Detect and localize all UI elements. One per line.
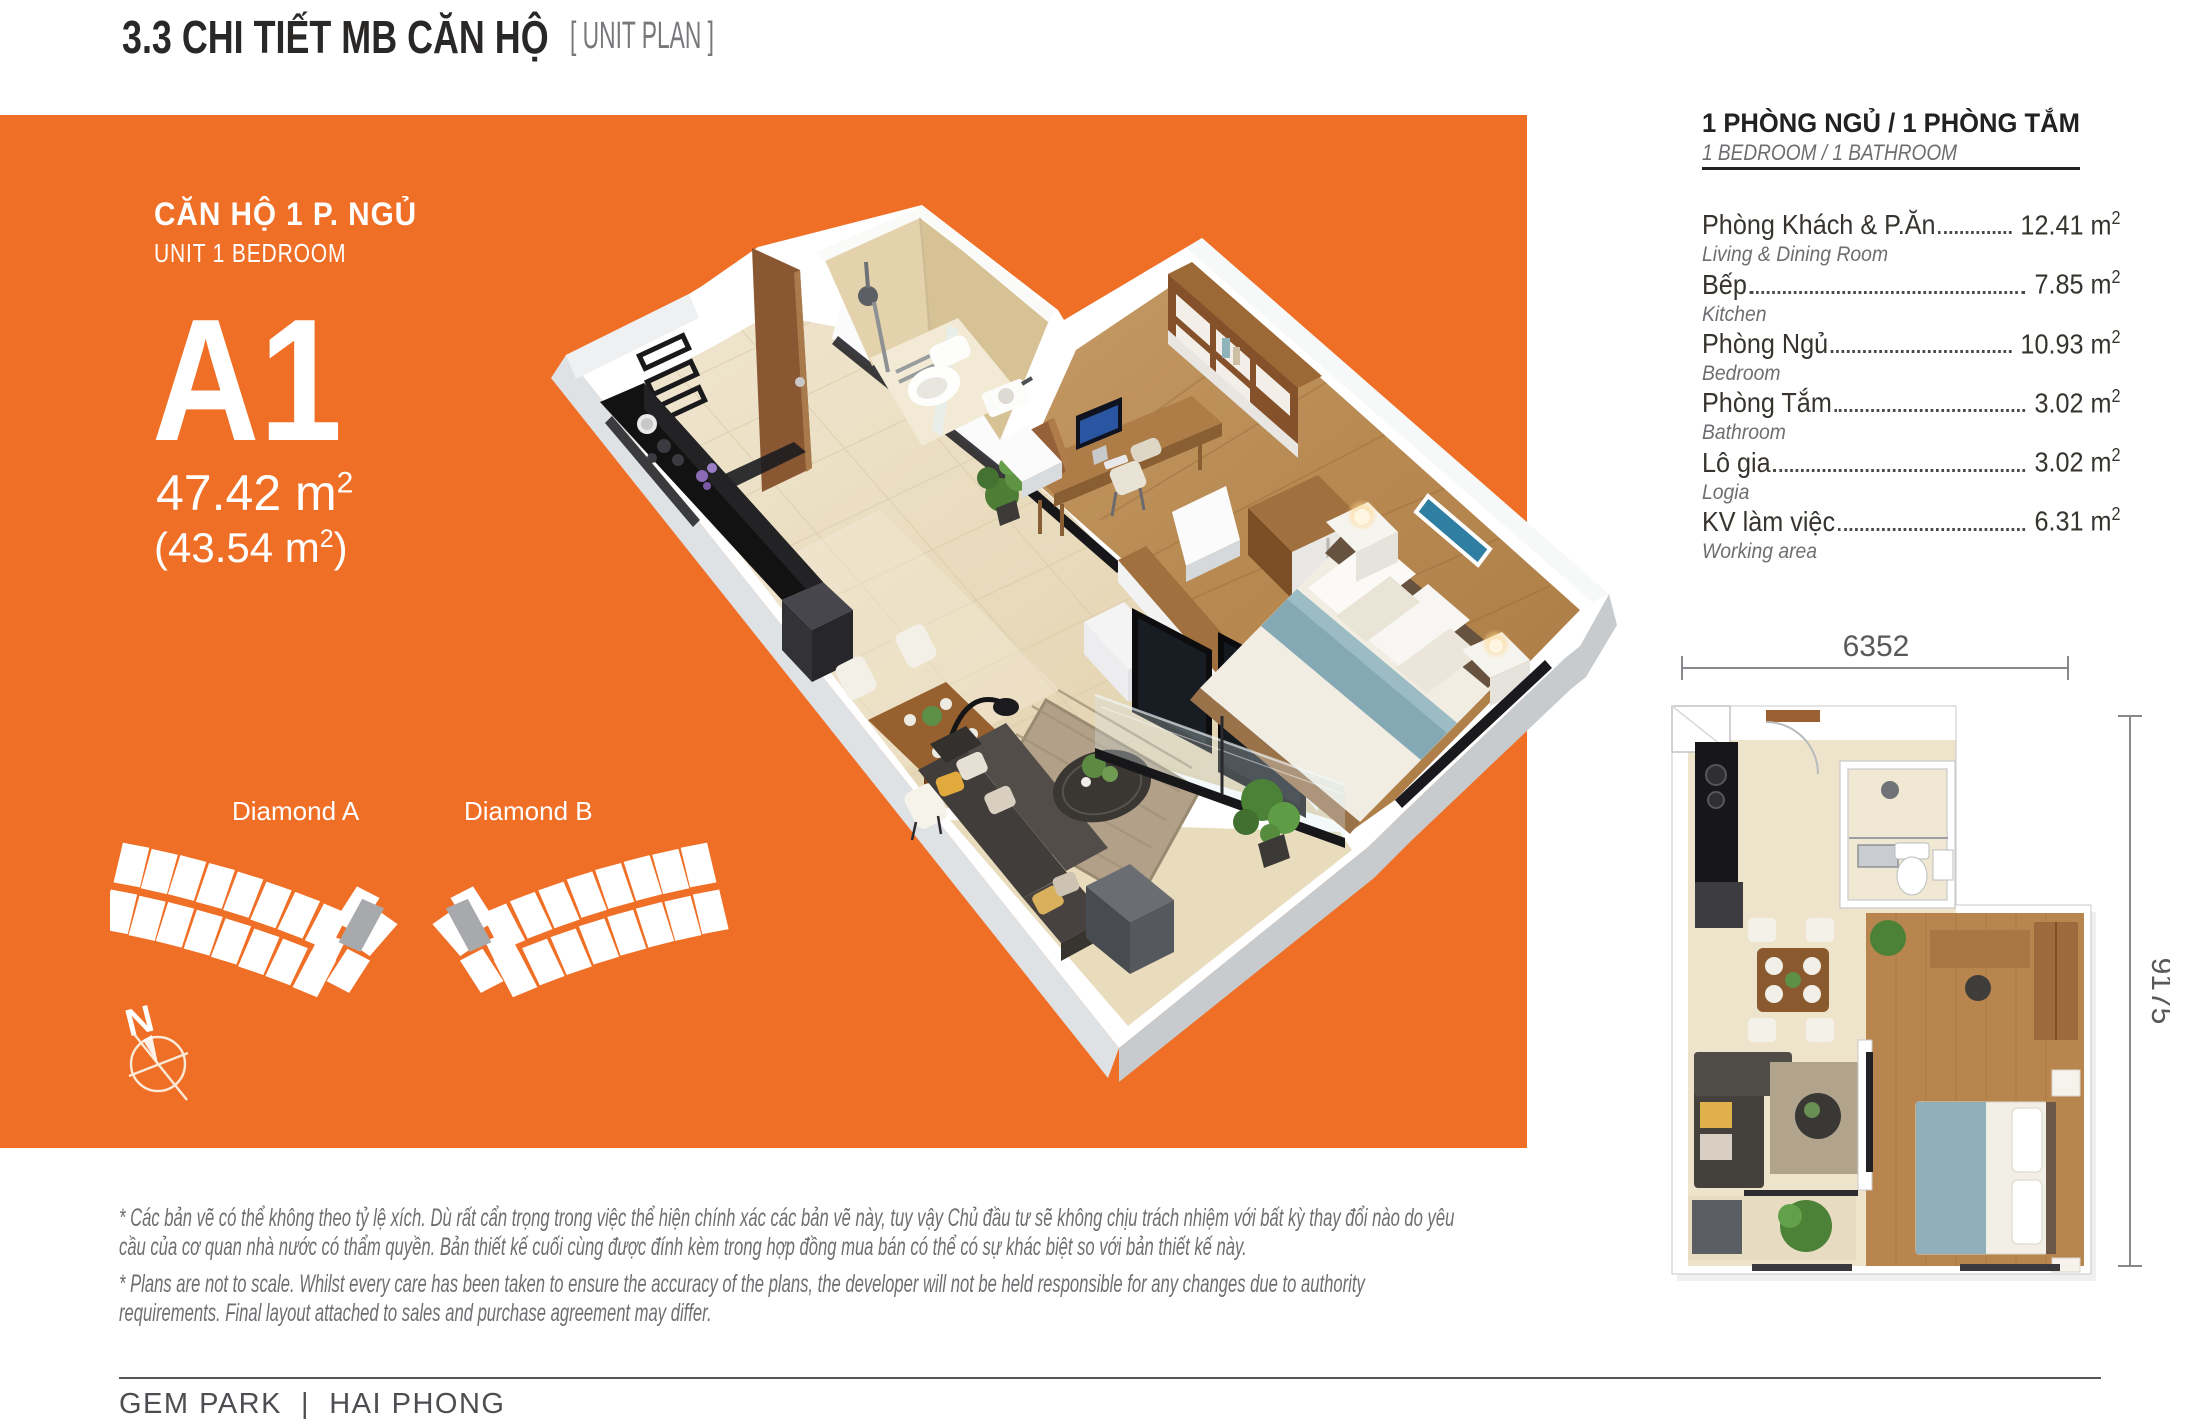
svg-text:9175: 9175: [2145, 958, 2170, 1025]
svg-text:6352: 6352: [1843, 630, 1910, 663]
